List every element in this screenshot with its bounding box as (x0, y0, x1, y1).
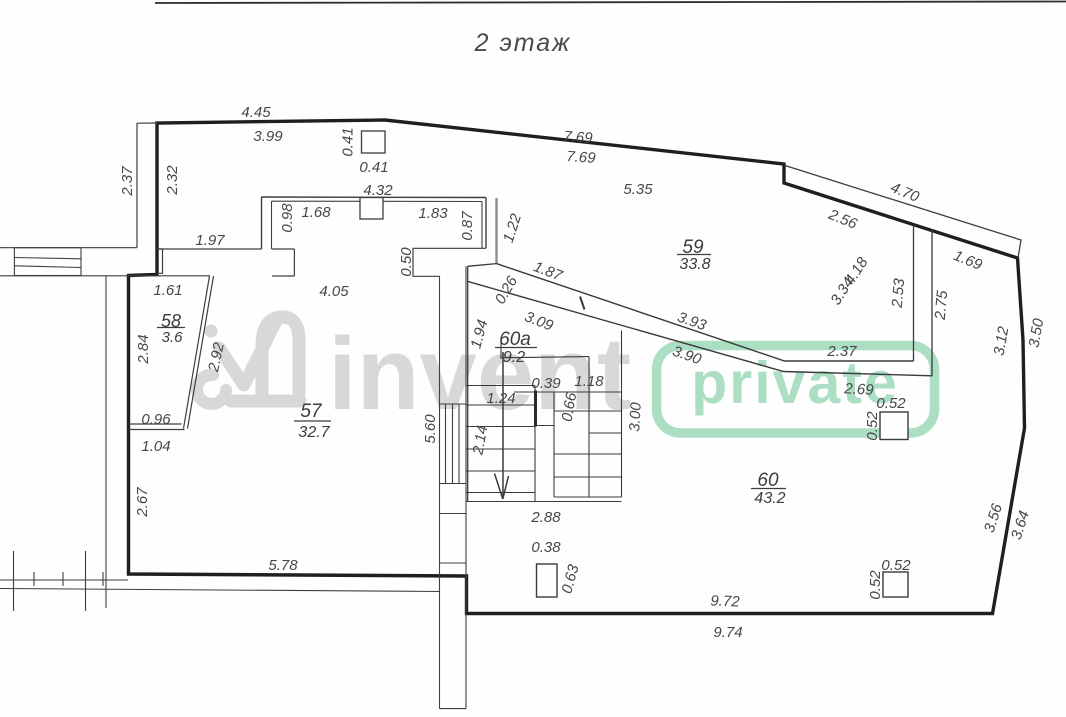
svg-text:2.37: 2.37 (826, 343, 857, 360)
svg-text:0.52: 0.52 (867, 570, 884, 600)
svg-text:5.35: 5.35 (623, 181, 653, 198)
svg-text:2.92: 2.92 (205, 340, 228, 374)
svg-text:1.68: 1.68 (301, 204, 331, 221)
svg-text:33.8: 33.8 (679, 256, 710, 273)
svg-text:2.67: 2.67 (134, 487, 151, 518)
svg-text:0.38: 0.38 (531, 539, 561, 556)
svg-text:1.04: 1.04 (141, 438, 170, 455)
svg-text:3.64: 3.64 (1008, 509, 1033, 542)
svg-text:2 этаж: 2 этаж (474, 29, 572, 57)
svg-text:0.96: 0.96 (141, 411, 171, 428)
svg-text:0.26: 0.26 (492, 273, 522, 307)
svg-text:3.56: 3.56 (981, 501, 1006, 535)
svg-text:4.32: 4.32 (363, 182, 393, 199)
svg-text:1.97: 1.97 (195, 232, 225, 249)
svg-text:4.05: 4.05 (319, 283, 349, 300)
svg-text:5.78: 5.78 (268, 557, 298, 574)
svg-text:3.50: 3.50 (1026, 317, 1048, 349)
svg-text:32.7: 32.7 (298, 424, 330, 441)
svg-text:9.72: 9.72 (710, 592, 740, 610)
svg-text:3.93: 3.93 (675, 309, 709, 335)
svg-text:2.75: 2.75 (932, 289, 952, 321)
svg-text:7.69: 7.69 (563, 128, 594, 147)
svg-text:1.69: 1.69 (951, 247, 985, 274)
svg-text:1.61: 1.61 (153, 282, 182, 299)
svg-text:0.41: 0.41 (359, 159, 388, 176)
svg-text:1.83: 1.83 (418, 205, 448, 222)
svg-text:2.88: 2.88 (530, 509, 561, 526)
svg-text:0.52: 0.52 (864, 411, 881, 441)
svg-text:9.74: 9.74 (713, 624, 742, 641)
svg-text:60: 60 (757, 470, 779, 491)
svg-text:3.12: 3.12 (991, 325, 1013, 357)
svg-text:43.2: 43.2 (754, 490, 785, 507)
svg-text:1.22: 1.22 (500, 211, 525, 245)
svg-text:2.37: 2.37 (119, 166, 136, 197)
svg-text:1.24: 1.24 (486, 390, 515, 407)
svg-text:3.99: 3.99 (253, 128, 283, 145)
svg-text:0.50: 0.50 (398, 247, 415, 277)
svg-text:2.32: 2.32 (164, 165, 181, 196)
svg-text:2.69: 2.69 (843, 380, 875, 399)
svg-text:0.41: 0.41 (340, 127, 357, 156)
svg-text:4.70: 4.70 (888, 179, 922, 206)
svg-text:9.2: 9.2 (503, 349, 525, 366)
svg-text:2.84: 2.84 (135, 334, 152, 364)
svg-text:0.52: 0.52 (881, 557, 911, 574)
svg-text:5.60: 5.60 (422, 414, 439, 444)
svg-text:0.87: 0.87 (459, 211, 476, 241)
svg-text:7.69: 7.69 (566, 148, 597, 167)
svg-text:3.6: 3.6 (162, 329, 184, 346)
svg-text:2.53: 2.53 (889, 277, 909, 309)
svg-text:0.52: 0.52 (876, 395, 906, 412)
svg-text:1.18: 1.18 (574, 373, 604, 390)
svg-text:3.00: 3.00 (626, 401, 645, 432)
svg-text:2.56: 2.56 (825, 206, 860, 233)
svg-text:57: 57 (300, 401, 323, 422)
svg-text:60а: 60а (499, 329, 531, 350)
svg-text:0.98: 0.98 (279, 203, 296, 233)
svg-text:0.39: 0.39 (531, 375, 561, 392)
svg-text:0.63: 0.63 (558, 562, 582, 595)
svg-text:4.45: 4.45 (241, 104, 271, 121)
